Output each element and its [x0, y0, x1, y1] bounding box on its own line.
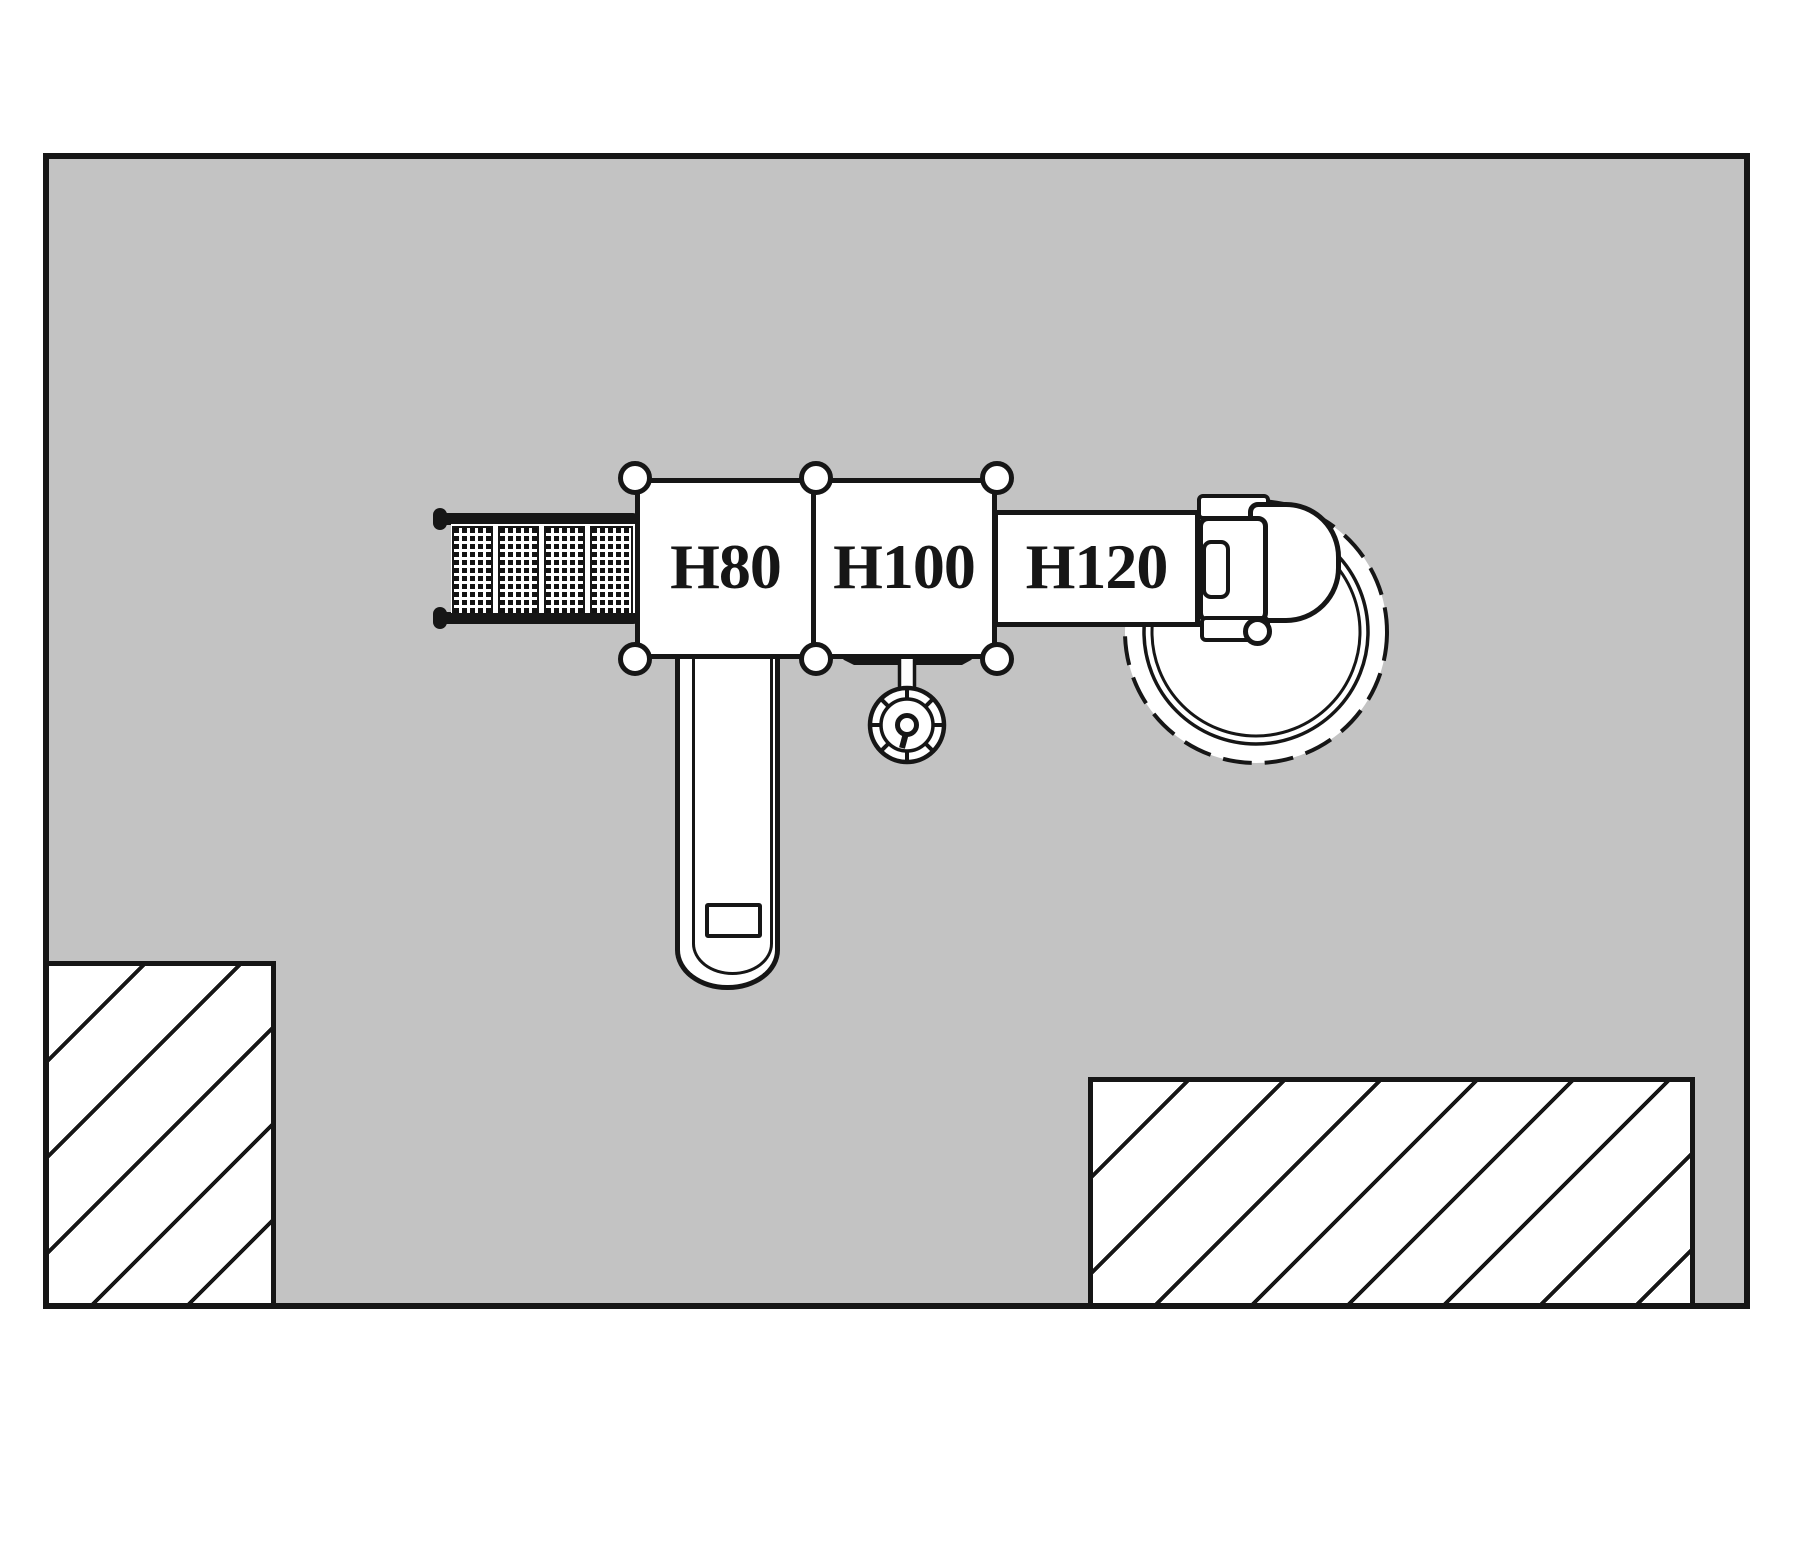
net-climber-bridge — [451, 524, 637, 613]
net-mesh-panel — [498, 526, 539, 615]
label-h120: H120 — [1026, 535, 1168, 599]
platform-H80: H80 — [635, 478, 816, 659]
corner-post — [799, 642, 833, 676]
corner-post — [980, 461, 1014, 495]
hatched-cutout-left — [43, 961, 276, 1309]
net-bridge-bottom-endcap — [433, 607, 447, 629]
hatched-cutout-right — [1088, 1077, 1695, 1309]
net-mesh-panel — [452, 526, 493, 615]
hood-entry-notch — [1202, 540, 1230, 599]
straight-slide — [675, 657, 780, 990]
ramp-H120: H120 — [993, 510, 1200, 627]
label-h100: H100 — [833, 535, 975, 599]
label-h80: H80 — [670, 535, 781, 599]
corner-post — [980, 642, 1014, 676]
corner-post — [618, 461, 652, 495]
net-mesh-panel — [590, 526, 633, 615]
net-mesh-panel — [544, 526, 585, 615]
corner-post — [618, 642, 652, 676]
hood-post-knob — [1243, 617, 1272, 646]
corner-post — [799, 461, 833, 495]
platform-H100: H100 — [816, 478, 997, 659]
plan-drawing: H120 H80 H100 — [0, 0, 1807, 1547]
slide-foot-detail — [705, 903, 762, 938]
net-bridge-top-endcap — [433, 508, 447, 530]
